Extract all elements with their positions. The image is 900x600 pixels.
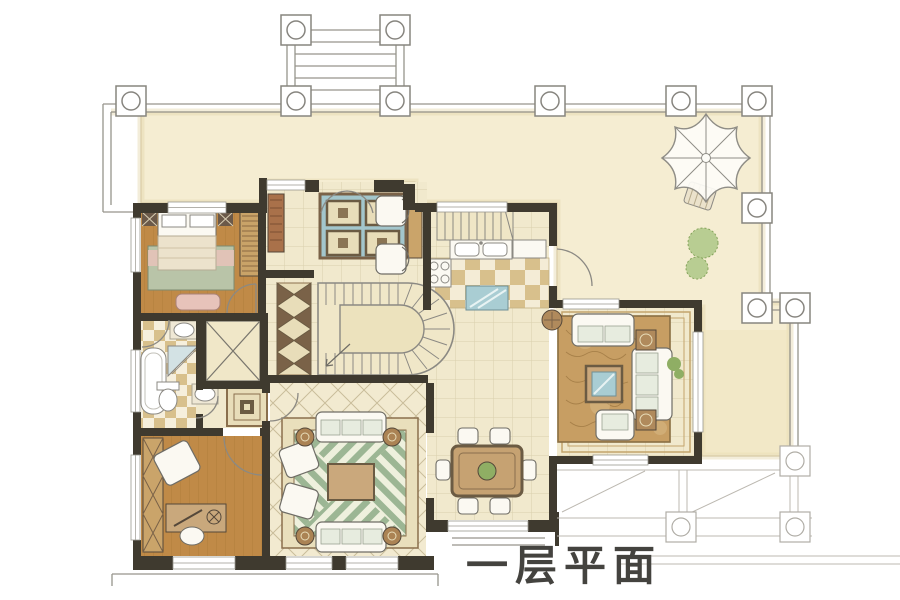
kitchen-counter-right — [513, 240, 546, 258]
sink-bowl-right — [483, 243, 507, 256]
service-stairs — [437, 210, 513, 240]
foyer-console — [408, 206, 422, 258]
hall-medallion-dot — [244, 404, 250, 410]
column-icon — [742, 86, 772, 116]
sink-bowl-left — [455, 243, 479, 256]
column-icon — [116, 86, 146, 116]
column-icon — [666, 512, 696, 542]
parasol-icon — [662, 114, 750, 202]
column-icon — [380, 15, 410, 45]
stair-island — [340, 305, 424, 353]
column-icon — [666, 86, 696, 116]
plan-caption: 一层平面 — [466, 541, 662, 590]
faucet — [479, 241, 483, 245]
elevator — [199, 321, 267, 381]
dining-centerpiece-plant — [478, 462, 496, 480]
column-icon — [535, 86, 565, 116]
toilet-bowl — [159, 389, 177, 411]
column-icon — [742, 293, 772, 323]
hall-medallion — [227, 388, 267, 426]
column-icon — [380, 86, 410, 116]
floor-plan-canvas: 一层平面 — [0, 0, 900, 600]
living-room-furniture — [542, 310, 684, 442]
column-icon — [281, 15, 311, 45]
bed-bench — [176, 294, 220, 310]
column-icon — [780, 446, 810, 476]
floor-plan-page: 一层平面 — [0, 0, 900, 600]
pillow-left — [162, 215, 186, 227]
column-icon — [780, 512, 810, 542]
column-icon — [742, 193, 772, 223]
family-center-table — [328, 464, 374, 500]
column-icon — [780, 293, 810, 323]
desk-chair — [180, 527, 204, 545]
diamond-strip — [277, 283, 311, 375]
column-icon — [281, 86, 311, 116]
sink-1 — [174, 323, 194, 337]
foyer-cabinet — [268, 194, 284, 252]
bed-blanket — [158, 236, 216, 270]
family-room-furniture — [278, 412, 418, 552]
pillow-right — [190, 215, 214, 227]
